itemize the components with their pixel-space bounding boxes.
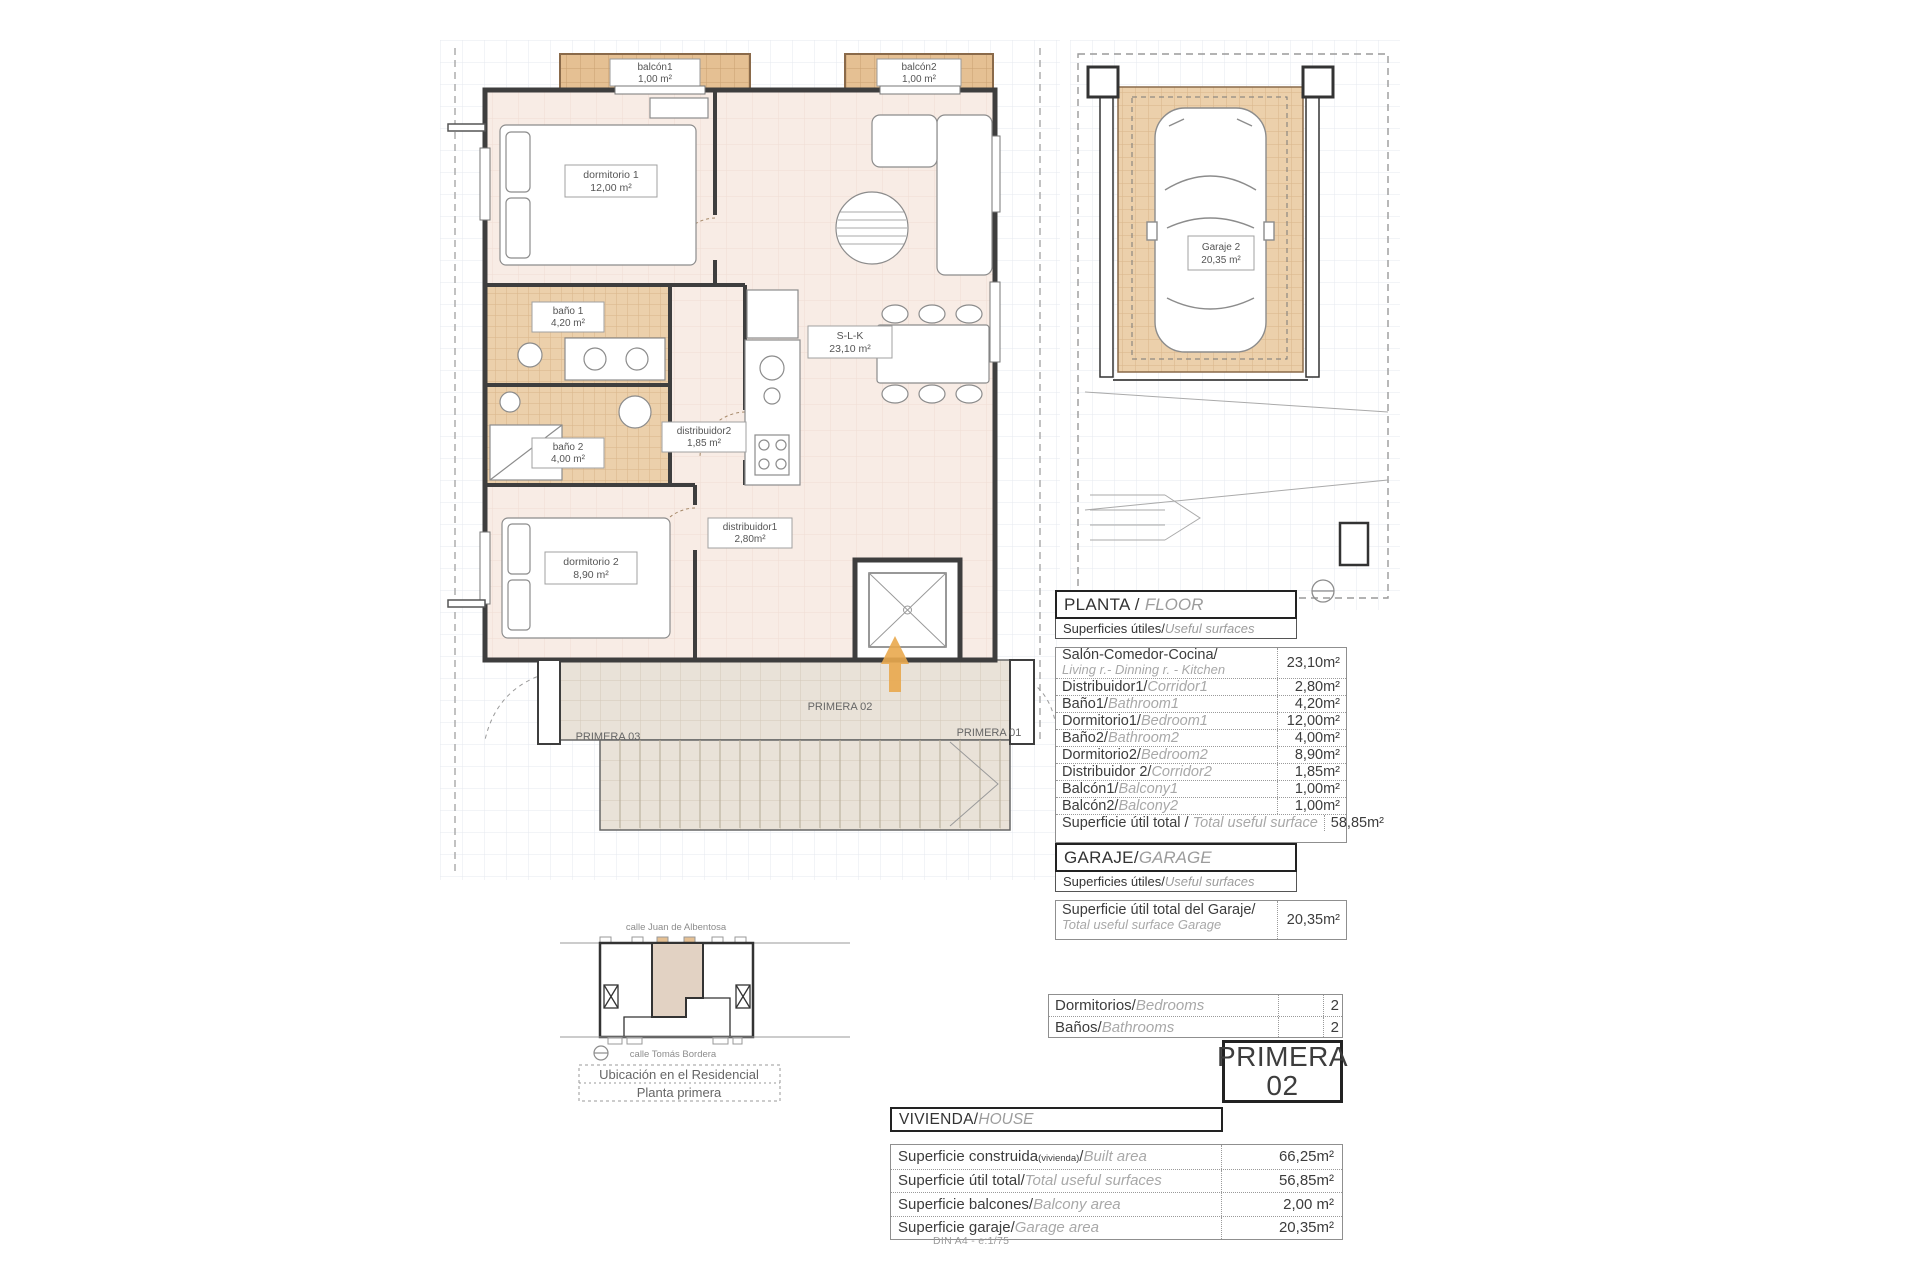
ramp-pillar xyxy=(1340,523,1368,565)
planta-header: PLANTA / FLOOR xyxy=(1055,590,1297,619)
vivienda-table: Superficie construida(vivienda)/Built ar… xyxy=(890,1144,1343,1240)
map-north-icon xyxy=(594,1046,608,1060)
row-label-en: Bedroom2 xyxy=(1141,747,1208,763)
row-label-en: Total useful surfaces xyxy=(1025,1172,1162,1189)
primera-01-label: PRIMERA 01 xyxy=(957,727,1022,739)
vivienda-title-es: VIVIENDA/ xyxy=(899,1111,978,1129)
table-row: Baño2/Bathroom24,00m² xyxy=(1056,729,1346,746)
table-row: Dormitorios/Bedrooms 2 xyxy=(1049,995,1342,1016)
unit-badge-line2: 02 xyxy=(1266,1072,1298,1101)
street-top-label: calle Juan de Albentosa xyxy=(626,922,727,933)
table-row: Dormitorio2/Bedroom28,90m² xyxy=(1056,746,1346,763)
row-value: 2,00 m² xyxy=(1221,1193,1342,1216)
table-row: Distribuidor 2/Corridor21,85m² xyxy=(1056,763,1346,780)
dormitorio1-area: 12,00 m² xyxy=(590,182,632,194)
row-label-en: Balcony1 xyxy=(1118,781,1178,797)
planta-subtitle-en: Useful surfaces xyxy=(1165,621,1255,636)
dormitorio1-name: dormitorio 1 xyxy=(583,169,639,181)
total-label-es: Superficie útil total / xyxy=(1062,815,1193,831)
count-label-en: Bedrooms xyxy=(1136,997,1204,1014)
row-value: 4,00m² xyxy=(1277,730,1346,746)
row-value: 20,35m² xyxy=(1277,901,1346,939)
balcon2-area: 1,00 m² xyxy=(902,74,937,85)
dormitorio2-name: dormitorio 2 xyxy=(563,556,619,568)
table-row: Superficie útil total/Total useful surfa… xyxy=(891,1169,1342,1193)
count-value: 2 xyxy=(1323,1017,1342,1037)
table-row: Baños/Bathrooms 2 xyxy=(1049,1016,1342,1037)
plan-sheet: balcón1 1,00 m² balcón2 1,00 m² xyxy=(0,0,1920,1280)
row-value: 1,00m² xyxy=(1277,781,1346,797)
table-row: Superficie construida(vivienda)/Built ar… xyxy=(891,1145,1342,1169)
planta-subheader: Superficies útiles/Useful surfaces xyxy=(1055,619,1297,639)
garaje-title-en: GARAGE xyxy=(1139,848,1212,868)
balcon1-name: balcón1 xyxy=(637,62,672,73)
row-value: 56,85m² xyxy=(1221,1170,1342,1193)
planta-title-es: PLANTA / xyxy=(1064,595,1145,615)
row-label-en: Corridor1 xyxy=(1147,679,1207,695)
row-label-es: Balcón1/ xyxy=(1062,781,1118,797)
distribuidor1-area: 2,80m² xyxy=(734,534,766,545)
garaje-block: GARAJE/GARAGE Superficies útiles/Useful … xyxy=(1055,843,1347,940)
table-row: Dormitorio1/Bedroom112,00m² xyxy=(1056,712,1346,729)
elevator xyxy=(855,560,960,660)
count-label-en: Bathrooms xyxy=(1102,1019,1175,1036)
table-row: Superficie útil total del Garaje/ Total … xyxy=(1056,901,1346,939)
dormitorio2-area: 8,90 m² xyxy=(573,569,609,581)
distribuidor2-area: 1,85 m² xyxy=(687,438,722,449)
row-label-es: Superficie garaje/ xyxy=(898,1219,1015,1236)
row-label-en: Bathroom1 xyxy=(1108,696,1179,712)
garaje2-name: Garaje 2 xyxy=(1202,242,1241,253)
primera-02-label: PRIMERA 02 xyxy=(808,701,873,713)
row-label-es: Distribuidor1/ xyxy=(1062,679,1147,695)
slk-name: S-L-K xyxy=(837,330,864,342)
row-label-en: Bedroom1 xyxy=(1141,713,1208,729)
location-map: calle Juan de Albentosa xyxy=(555,915,855,1135)
garaje-subheader: Superficies útiles/Useful surfaces xyxy=(1055,872,1297,892)
total-label-en: Total useful surface xyxy=(1193,815,1318,831)
building-bottom-ticks xyxy=(608,1038,742,1044)
garage-plan: Garaje 2 20,35 m² xyxy=(1070,40,1400,610)
row-value: 2,80m² xyxy=(1277,679,1346,695)
count-label-es: Baños/ xyxy=(1055,1019,1102,1036)
row-label-es: Superficie balcones/ xyxy=(898,1196,1033,1213)
primera-03-label: PRIMERA 03 xyxy=(576,731,641,743)
map-caption-box: Ubicación en el Residencial Planta prime… xyxy=(579,1065,780,1101)
table-bottom-padding xyxy=(1056,831,1346,842)
balcon1-area: 1,00 m² xyxy=(638,74,673,85)
bano1-area: 4,20 m² xyxy=(551,318,586,329)
balcony-1: balcón1 1,00 m² xyxy=(560,54,750,91)
spacer-cell xyxy=(1278,1017,1323,1037)
row-label-en: Corridor2 xyxy=(1151,764,1211,780)
spacer-cell xyxy=(1278,995,1323,1016)
garaje-header: GARAJE/GARAGE xyxy=(1055,843,1297,872)
slk-area: 23,10 m² xyxy=(829,343,871,355)
table-row: Balcón1/Balcony11,00m² xyxy=(1056,780,1346,797)
row-value: 1,85m² xyxy=(1277,764,1346,780)
garaje2-area: 20,35 m² xyxy=(1201,255,1241,266)
planta-title-en: FLOOR xyxy=(1145,595,1204,615)
map-caption-line1: Ubicación en el Residencial xyxy=(599,1067,759,1082)
row-label-es: Baño1/ xyxy=(1062,696,1108,712)
street-bottom-label: calle Tomás Bordera xyxy=(630,1049,717,1060)
row-label-en: Balcony area xyxy=(1033,1196,1121,1213)
unit-badge-line1: PRIMERA xyxy=(1217,1043,1348,1072)
garaje-title-es: GARAJE/ xyxy=(1064,848,1139,868)
table-row: Balcón2/Balcony21,00m² xyxy=(1056,797,1346,814)
main-floor-plan: balcón1 1,00 m² balcón2 1,00 m² xyxy=(440,40,1060,880)
din-scale-note: DIN A4 - e:1/75 xyxy=(933,1235,1009,1247)
total-value: 58,85m² xyxy=(1324,815,1390,831)
row-label-es: Superficie construida xyxy=(898,1148,1038,1165)
row-label-en: Garage area xyxy=(1015,1219,1099,1236)
garaje-table: Superficie útil total del Garaje/ Total … xyxy=(1055,900,1347,940)
row-value: 12,00m² xyxy=(1277,713,1346,729)
row-label-es: Superficie útil total/ xyxy=(898,1172,1025,1189)
row-label-en: Total useful surface Garage xyxy=(1062,917,1221,932)
row-value: 66,25m² xyxy=(1221,1145,1342,1169)
row-label-en: Balcony2 xyxy=(1118,798,1178,814)
table-row: Distribuidor1/Corridor12,80m² xyxy=(1056,678,1346,695)
count-label-es: Dormitorios/ xyxy=(1055,997,1136,1014)
row-label-es: Distribuidor 2/ xyxy=(1062,764,1151,780)
planta-subtitle-es: Superficies útiles/ xyxy=(1063,621,1165,636)
table-total-row: Superficie útil total / Total useful sur… xyxy=(1056,814,1346,831)
balcony-2: balcón2 1,00 m² xyxy=(845,54,993,91)
distribuidor2-name: distribuidor2 xyxy=(677,426,732,437)
table-row: Salón-Comedor-Cocina/ Living r.- Dinning… xyxy=(1056,648,1346,678)
row-label-en: Built area xyxy=(1083,1148,1146,1165)
row-value: 20,35m² xyxy=(1221,1217,1342,1240)
planta-block: PLANTA / FLOOR Superficies útiles/Useful… xyxy=(1055,590,1347,843)
counts-table: Dormitorios/Bedrooms 2 Baños/Bathrooms 2 xyxy=(1048,994,1343,1038)
row-value: 23,10m² xyxy=(1277,648,1346,678)
table-row: Baño1/Bathroom14,20m² xyxy=(1056,695,1346,712)
car xyxy=(1147,108,1274,352)
row-label-en: Bathroom2 xyxy=(1108,730,1179,746)
kitchen-counter xyxy=(745,290,800,485)
bano2-area: 4,00 m² xyxy=(551,454,586,465)
row-label-es: Balcón2/ xyxy=(1062,798,1118,814)
garaje-subtitle-es: Superficies útiles/ xyxy=(1063,874,1165,889)
row-label-es: Baño2/ xyxy=(1062,730,1108,746)
row-label-note: (vivienda) xyxy=(1038,1153,1079,1164)
bano1-name: baño 1 xyxy=(553,306,584,317)
distribuidor1-name: distribuidor1 xyxy=(723,522,778,533)
unit-badge: PRIMERA 02 xyxy=(1222,1040,1343,1103)
row-label-en: Living r.- Dinning r. - Kitchen xyxy=(1062,662,1225,677)
vivienda-title-en: HOUSE xyxy=(978,1111,1033,1129)
bano2-name: baño 2 xyxy=(553,442,584,453)
count-value: 2 xyxy=(1323,995,1342,1016)
vivienda-header: VIVIENDA/HOUSE xyxy=(890,1107,1223,1132)
row-value: 8,90m² xyxy=(1277,747,1346,763)
map-caption-line2: Planta primera xyxy=(637,1085,722,1100)
row-value: 1,00m² xyxy=(1277,798,1346,814)
planta-table: Salón-Comedor-Cocina/ Living r.- Dinning… xyxy=(1055,647,1347,843)
row-label-es: Dormitorio1/ xyxy=(1062,713,1141,729)
balcon2-name: balcón2 xyxy=(901,62,936,73)
row-value: 4,20m² xyxy=(1277,696,1346,712)
garaje-subtitle-en: Useful surfaces xyxy=(1165,874,1255,889)
table-row: Superficie balcones/Balcony area 2,00 m² xyxy=(891,1192,1342,1216)
row-label-es: Dormitorio2/ xyxy=(1062,747,1141,763)
